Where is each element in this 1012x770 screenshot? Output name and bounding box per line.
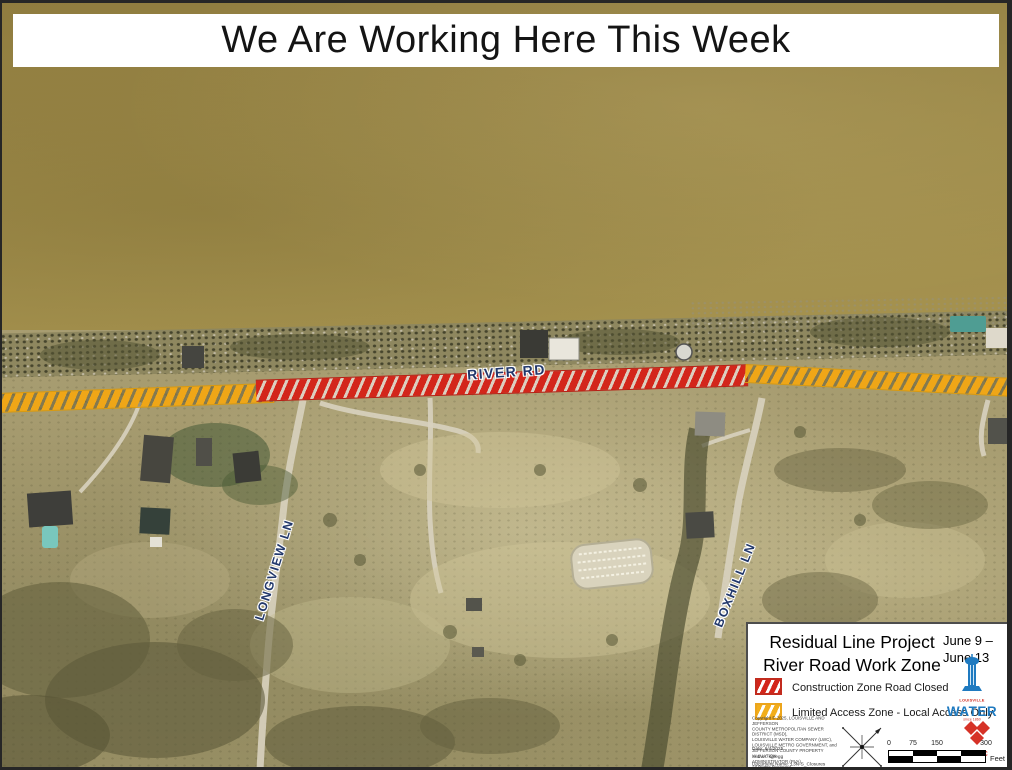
meta-document-name: Document Name: 13N-S_Closures xyxy=(752,762,854,770)
legend-box: Residual Line Project River Road Work Zo… xyxy=(746,622,1009,769)
scale-tick: 150 xyxy=(931,740,943,747)
copyright-line: COUNTY METROPOLITAN SEWER DISTRICT (MSD)… xyxy=(752,727,840,738)
meta-author: Author: kgregg xyxy=(752,754,854,762)
copyright-line: Copyright © 2025, LOUISVILLE AND JEFFERS… xyxy=(752,716,840,727)
legend-title-line2: River Road Work Zone xyxy=(752,654,952,677)
leach-field xyxy=(570,538,654,590)
document-meta: Date: 6/4/2025 Author: kgregg Document N… xyxy=(752,746,854,769)
water-tower-icon xyxy=(944,654,1000,694)
scale-bar xyxy=(888,750,986,763)
construction-zone-swatch xyxy=(755,678,782,695)
water-logo-line1: LOUISVILLE xyxy=(954,699,991,703)
scale-bar-ticks: 0 75 150 300 xyxy=(748,740,1007,748)
scale-tick: 300 xyxy=(980,740,992,747)
date-line1: June 9 – xyxy=(943,632,1001,649)
louisville-water-logo: LOUISVILLE WATER since 1860 xyxy=(944,654,1000,718)
page-title: We Are Working Here This Week xyxy=(221,19,790,62)
water-tank xyxy=(676,344,692,360)
map-flyer: RIVER RD LONGVIEW LN BOXHILL LN We Are W… xyxy=(0,0,1012,770)
water-logo-line2: WATER xyxy=(944,705,1000,718)
scale-tick: 75 xyxy=(909,740,917,747)
scale-tick: 0 xyxy=(887,740,891,747)
title-banner: We Are Working Here This Week xyxy=(13,14,999,67)
construction-zone-label: Construction Zone Road Closed xyxy=(792,682,949,694)
legend-title-line1: Residual Line Project xyxy=(752,631,952,654)
scale-bar-unit: Feet xyxy=(990,754,1005,763)
legend-title: Residual Line Project River Road Work Zo… xyxy=(752,631,952,677)
